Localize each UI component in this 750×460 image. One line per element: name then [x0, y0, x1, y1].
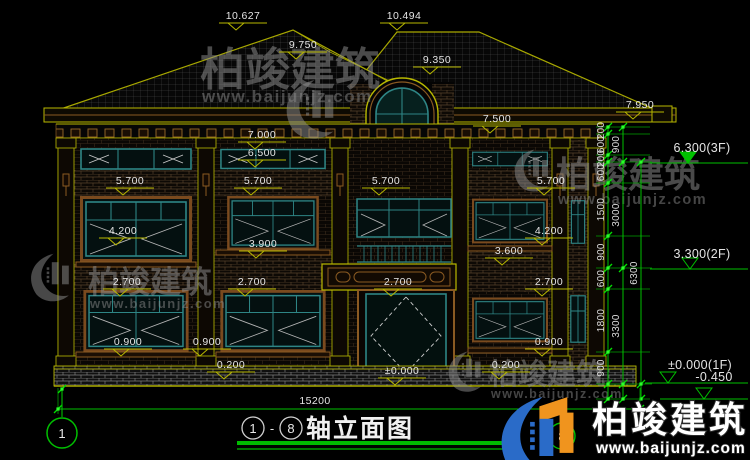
svg-text:600: 600 [596, 270, 607, 288]
dimension-value-total: 6300 [629, 261, 640, 285]
svg-text:7.500: 7.500 [483, 113, 511, 125]
svg-text:10.494: 10.494 [387, 10, 422, 22]
svg-text:7.950: 7.950 [626, 99, 654, 111]
svg-text:0.900: 0.900 [535, 336, 563, 348]
watermark-url: www.baijunjz.com [557, 192, 707, 208]
title-separator: - [270, 421, 274, 436]
window-1f-edge [571, 296, 585, 342]
pilaster [196, 138, 216, 368]
transom-window-left [81, 149, 191, 169]
svg-text:2.700: 2.700 [113, 276, 141, 288]
window-1f-right [473, 299, 547, 342]
svg-text:±0.000: ±0.000 [385, 365, 419, 377]
window-2f-center-strip [357, 199, 451, 237]
total-width-value: 15200 [299, 395, 330, 407]
svg-text:-0.450: -0.450 [695, 370, 732, 384]
eave-end-bracket [652, 106, 672, 122]
svg-text:4.200: 4.200 [109, 225, 137, 237]
svg-text:5.700: 5.700 [244, 175, 272, 187]
svg-text:1: 1 [58, 426, 65, 441]
svg-text:3.300(2F): 3.300(2F) [674, 247, 731, 261]
svg-text:0.900: 0.900 [193, 336, 221, 348]
svg-text:0.200: 0.200 [217, 359, 245, 371]
svg-text:2.700: 2.700 [535, 276, 563, 288]
svg-text:1500: 1500 [596, 198, 607, 222]
brand-logo-url: www.baijunjz.com [595, 440, 746, 457]
pilaster [330, 138, 350, 368]
svg-text:900: 900 [596, 243, 607, 261]
svg-text:3300: 3300 [611, 314, 622, 338]
svg-text:1800: 1800 [596, 309, 607, 333]
watermark-name: 柏竣建筑 [88, 265, 212, 300]
pilaster [56, 138, 76, 368]
svg-text:5.700: 5.700 [537, 175, 565, 187]
svg-text:900: 900 [596, 359, 607, 377]
svg-text:3000: 3000 [611, 203, 622, 227]
svg-text:9.350: 9.350 [423, 54, 451, 66]
svg-text:6.500: 6.500 [248, 147, 276, 159]
svg-text:5.700: 5.700 [116, 175, 144, 187]
watermark-url: www.baijunjz.com [201, 87, 373, 106]
svg-text:7.000: 7.000 [248, 129, 276, 141]
svg-text:600: 600 [596, 164, 607, 182]
watermark-name: 柏竣建筑 [556, 154, 700, 195]
svg-text:2.700: 2.700 [238, 276, 266, 288]
svg-text:900: 900 [611, 136, 622, 154]
svg-text:5.700: 5.700 [372, 175, 400, 187]
title-underline [237, 441, 505, 445]
cad-elevation-canvas: 柏竣建筑 www.baijunjz.com 柏竣建筑 www.baijunjz.… [0, 0, 750, 460]
svg-text:3.600: 3.600 [495, 245, 523, 257]
svg-text:10.627: 10.627 [226, 10, 261, 22]
svg-text:6.300(3F): 6.300(3F) [674, 141, 731, 155]
watermark-url: www.baijunjz.com [89, 296, 226, 311]
svg-text:0.200: 0.200 [492, 359, 520, 371]
entrance-door [358, 290, 454, 376]
brand-logo-name: 柏竣建筑 [592, 399, 748, 440]
title-bubble-start: 1 [249, 421, 256, 436]
svg-text:4.200: 4.200 [535, 225, 563, 237]
svg-text:3.900: 3.900 [249, 238, 277, 250]
title-text: 轴立面图 [306, 414, 414, 443]
title-bubble-end: 8 [287, 421, 294, 436]
window-1f-centerleft [222, 291, 324, 350]
svg-text:0.900: 0.900 [114, 336, 142, 348]
svg-text:2.700: 2.700 [384, 276, 412, 288]
svg-text:9.750: 9.750 [289, 39, 317, 51]
